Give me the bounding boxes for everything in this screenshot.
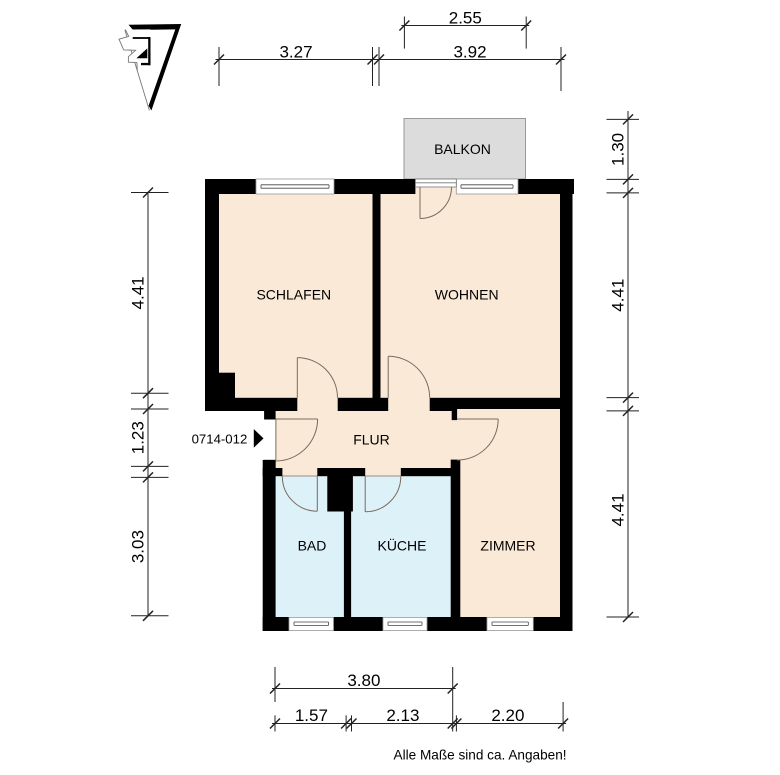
svg-text:WOHNEN: WOHNEN bbox=[435, 287, 499, 303]
svg-text:0714-012: 0714-012 bbox=[192, 432, 248, 447]
svg-text:ZIMMER: ZIMMER bbox=[480, 538, 535, 554]
svg-text:4.41: 4.41 bbox=[609, 493, 628, 526]
svg-text:4.41: 4.41 bbox=[129, 276, 148, 309]
svg-text:FLUR: FLUR bbox=[353, 432, 390, 448]
svg-text:3.27: 3.27 bbox=[279, 42, 312, 61]
svg-text:BAD: BAD bbox=[298, 538, 327, 554]
svg-text:1.23: 1.23 bbox=[129, 421, 148, 454]
svg-text:SCHLAFEN: SCHLAFEN bbox=[256, 287, 331, 303]
svg-text:3.92: 3.92 bbox=[453, 42, 486, 61]
svg-text:Alle Maße sind ca. Angaben!: Alle Maße sind ca. Angaben! bbox=[394, 748, 567, 763]
svg-text:1.30: 1.30 bbox=[609, 133, 628, 166]
svg-text:BALKON: BALKON bbox=[434, 141, 491, 157]
svg-text:2.13: 2.13 bbox=[386, 706, 419, 725]
svg-text:2.55: 2.55 bbox=[449, 8, 482, 27]
svg-text:3.03: 3.03 bbox=[129, 530, 148, 563]
svg-text:KÜCHE: KÜCHE bbox=[377, 537, 426, 554]
svg-text:4.41: 4.41 bbox=[609, 279, 628, 312]
svg-text:3.80: 3.80 bbox=[347, 671, 380, 690]
svg-text:1.57: 1.57 bbox=[295, 706, 328, 725]
svg-text:2.20: 2.20 bbox=[491, 706, 524, 725]
